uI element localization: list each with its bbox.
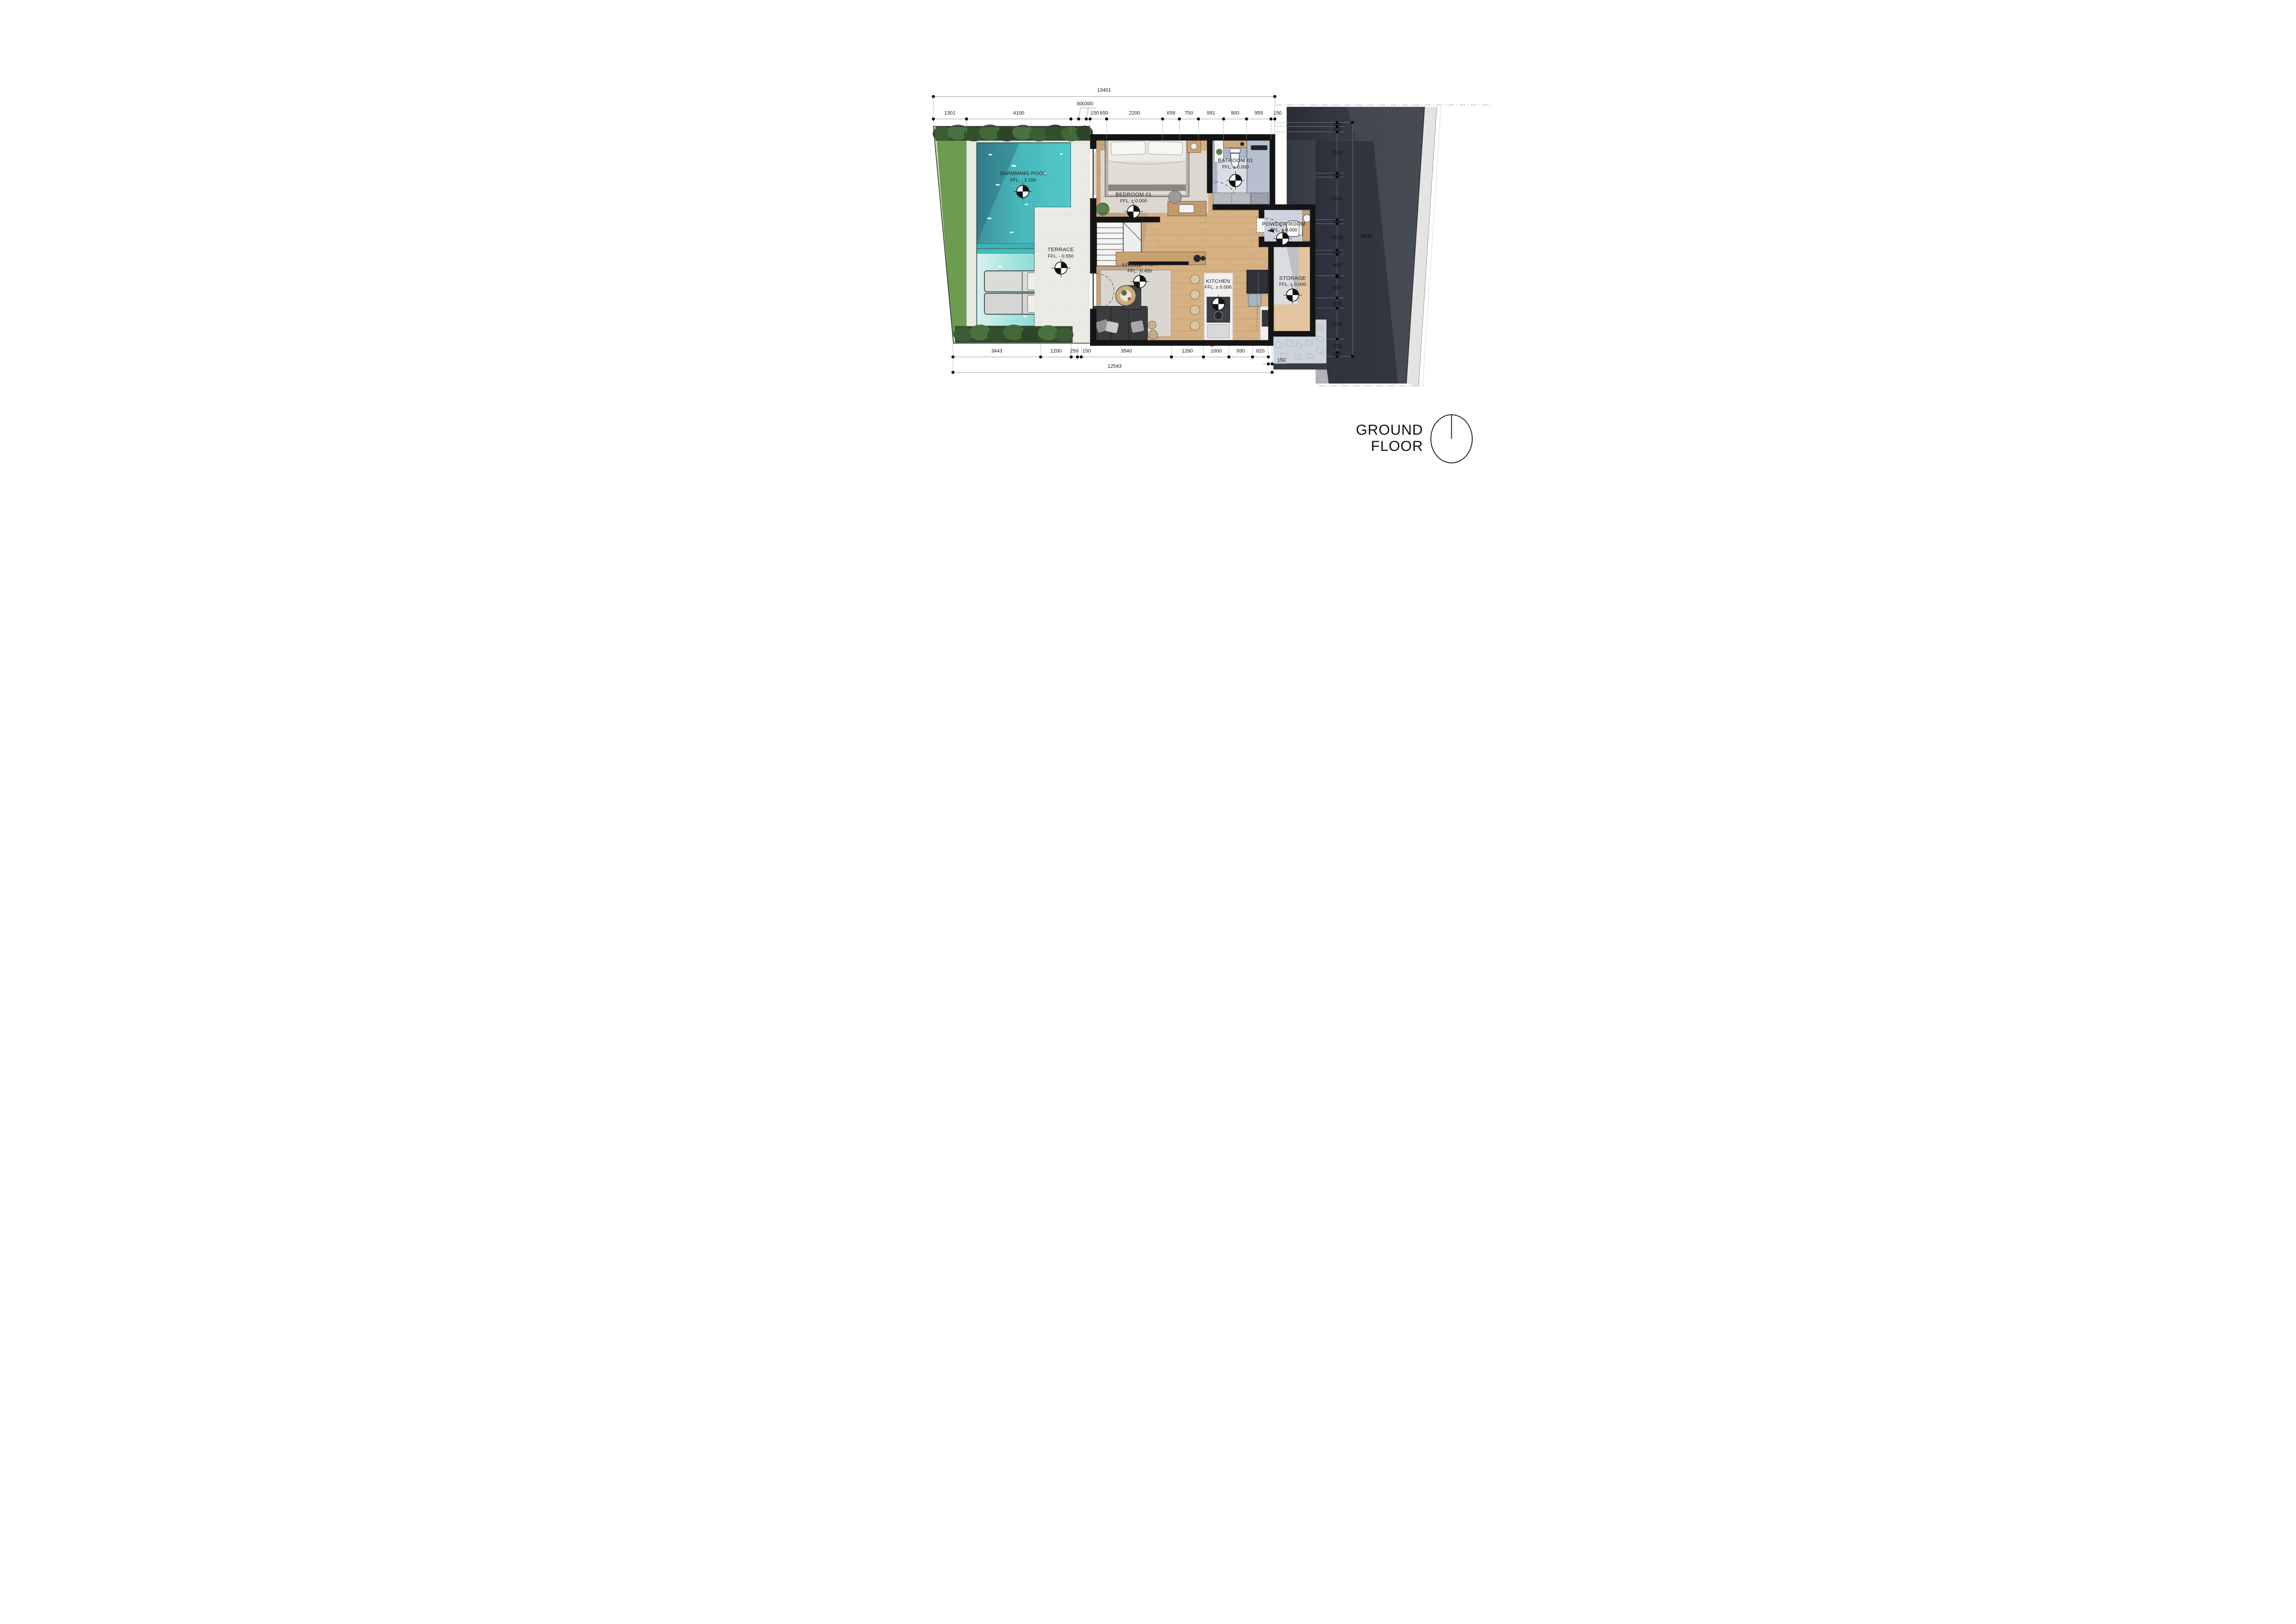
floor-plan-canvas: UP	[801, 0, 1495, 491]
dim-right-1: 200	[1332, 127, 1341, 133]
hedge-bottom	[953, 325, 1073, 343]
dim-top-2: 150	[1090, 110, 1099, 116]
north-indicator-icon	[1431, 415, 1472, 463]
svg-text:BEDROOM 01: BEDROOM 01	[1115, 192, 1151, 197]
dim-right-14: 150	[1332, 352, 1341, 357]
svg-text:FFL. ± 0.000: FFL. ± 0.000	[1204, 285, 1231, 290]
hedge-top	[933, 125, 1093, 142]
svg-text:KITCHEN: KITCHEN	[1206, 279, 1230, 284]
dim-bottom-3: 150	[1082, 348, 1090, 354]
dim-bottom-0: 3443	[991, 348, 1002, 354]
svg-text:FFL. ± 0.000: FFL. ± 0.000	[1270, 228, 1297, 233]
coffee-table	[1115, 286, 1136, 306]
dim-right-10: 800	[1332, 285, 1341, 291]
page-title-line1: GROUND	[1356, 422, 1423, 438]
dim-bottom-overall: 12543	[1108, 364, 1121, 369]
svg-text:LIVING AREA: LIVING AREA	[1122, 262, 1157, 267]
dim-top-6: 750	[1184, 110, 1193, 116]
dim-top-5: 659	[1167, 110, 1175, 116]
plant-bath	[1216, 149, 1222, 155]
dim-right-13: 500	[1332, 344, 1341, 349]
dim-top-leader-label: 300300	[1076, 101, 1093, 106]
dim-bottom-5: 1260	[1182, 348, 1193, 354]
dim-right-12: 1168	[1332, 321, 1342, 327]
dim-bottom-2: 250	[1070, 348, 1078, 354]
dimensions-bottom: 3443 1200 250 150 3540 1260 1000 930 620…	[951, 343, 1286, 374]
bed-runner	[1108, 185, 1186, 191]
island-sink	[1207, 325, 1229, 338]
dim-top-1: 4100	[1013, 110, 1024, 116]
dim-bottom-7: 930	[1236, 348, 1244, 354]
dim-right-8: 800	[1332, 262, 1341, 268]
dim-right-7: 150	[1332, 250, 1341, 256]
dim-right-6: 1000	[1331, 235, 1342, 240]
desk-chair	[1168, 191, 1181, 204]
water-dispenser-label: WATER DISPENSER (by MODENA)	[1256, 295, 1258, 333]
dim-right-11: 380	[1332, 301, 1341, 306]
dim-right-3: 150	[1332, 173, 1341, 178]
page-title-line2: FLOOR	[1371, 438, 1423, 454]
svg-text:STORAGE: STORAGE	[1279, 276, 1306, 281]
dim-top-4: 2200	[1129, 110, 1140, 116]
dim-bottom-6: 1000	[1210, 348, 1221, 354]
dim-right-4: 1600	[1331, 196, 1342, 201]
pillow-left	[1111, 141, 1145, 155]
svg-text:BATROOM 01: BATROOM 01	[1218, 158, 1253, 163]
title-block: GROUND FLOOR	[1356, 415, 1472, 463]
dim-bottom-offset: 150	[1277, 358, 1285, 363]
svg-text:FFL. ± 0.000: FFL. ± 0.000	[1222, 165, 1249, 170]
dim-top-7: 991	[1207, 110, 1215, 116]
building-shadow-top	[1287, 107, 1355, 140]
dim-right-5: 150	[1332, 219, 1341, 225]
dim-top-0: 1301	[944, 110, 955, 116]
dim-top-3: 650	[1100, 110, 1108, 116]
dim-top-overall: 13401	[1097, 87, 1111, 93]
svg-text:SWIMMING POOL: SWIMMING POOL	[1000, 171, 1046, 176]
boundary-wall-bottom	[1273, 363, 1327, 369]
outdoor-area	[931, 125, 1093, 344]
dim-top-8: 900	[1231, 110, 1239, 116]
dim-bottom-4: 3540	[1120, 348, 1132, 354]
svg-text:POWDER ROOM: POWDER ROOM	[1262, 221, 1305, 227]
floor-plan-page: UP	[801, 0, 1495, 491]
dim-right-9: 40	[1334, 274, 1339, 279]
powder-sink	[1303, 215, 1310, 222]
dim-top-10: 150	[1273, 110, 1282, 116]
shower-arm	[1251, 145, 1267, 150]
pillow-right	[1148, 141, 1182, 155]
dim-top-9: 959	[1254, 110, 1263, 116]
dim-right-overall: 8638	[1361, 234, 1372, 239]
pouf	[1148, 321, 1156, 329]
laptop	[1179, 205, 1194, 213]
svg-text:FFL. - 0.550: FFL. - 0.550	[1047, 254, 1073, 259]
dim-right-2: 1550	[1331, 150, 1342, 156]
svg-text:TERRACE: TERRACE	[1047, 247, 1074, 253]
dim-right-0: 150	[1332, 122, 1341, 128]
svg-text:FFL. - 2.150: FFL. - 2.150	[1010, 178, 1036, 183]
pouf	[1148, 330, 1157, 339]
sofa-pillow	[1130, 320, 1144, 333]
dim-bottom-1: 1200	[1050, 348, 1061, 354]
dim-bottom-8: 620	[1256, 348, 1264, 354]
wardrobe	[1213, 193, 1268, 204]
